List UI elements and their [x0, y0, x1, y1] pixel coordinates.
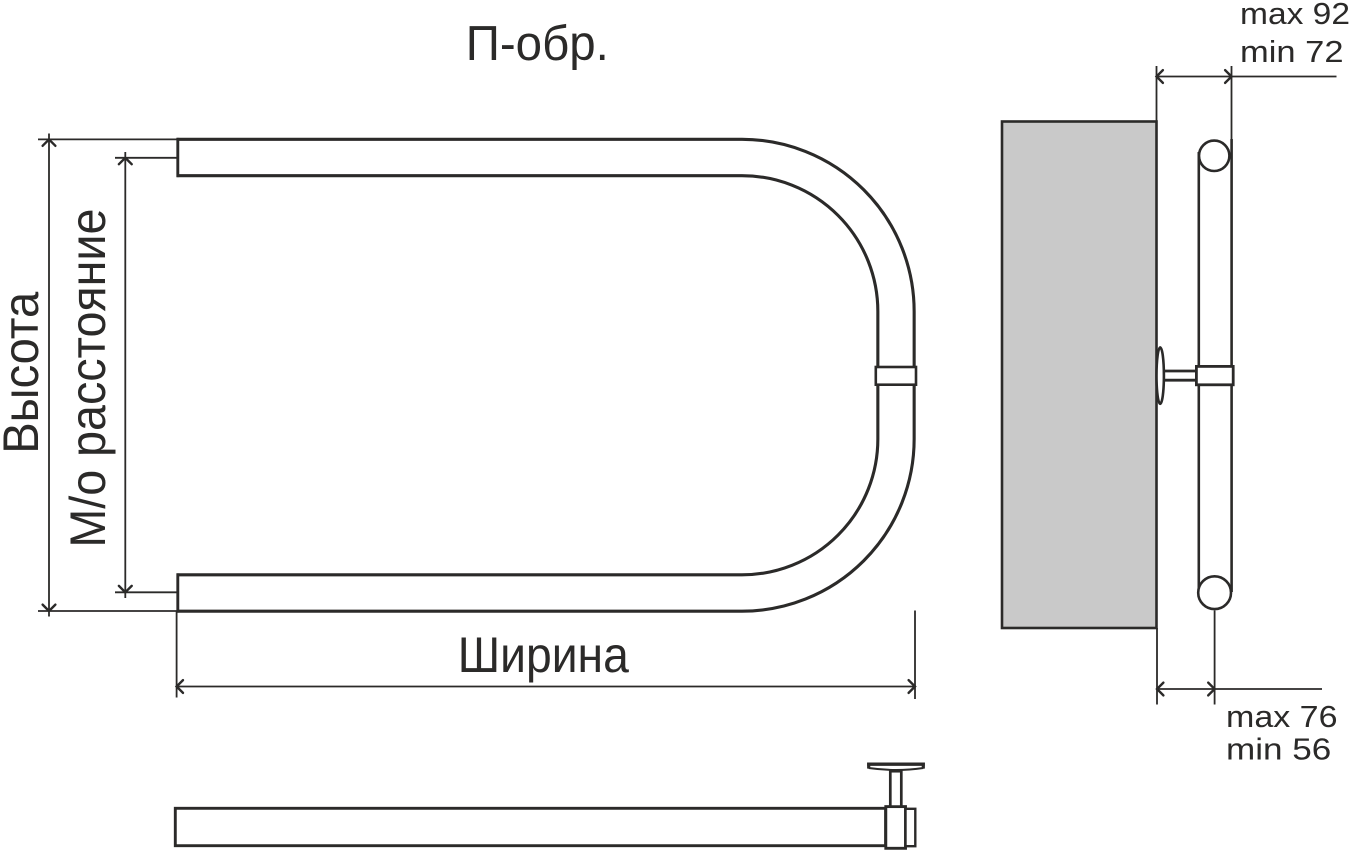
svg-text:П-обр.: П-обр.: [466, 16, 609, 71]
svg-text:max 92: max 92: [1240, 0, 1349, 31]
svg-text:min 72: min 72: [1240, 34, 1344, 69]
svg-text:М/о расстояние: М/о расстояние: [60, 209, 116, 548]
svg-text:Ширина: Ширина: [458, 626, 629, 683]
svg-text:max 76: max 76: [1226, 699, 1338, 734]
svg-text:Высота: Высота: [0, 292, 49, 454]
svg-text:min 56: min 56: [1226, 732, 1331, 767]
